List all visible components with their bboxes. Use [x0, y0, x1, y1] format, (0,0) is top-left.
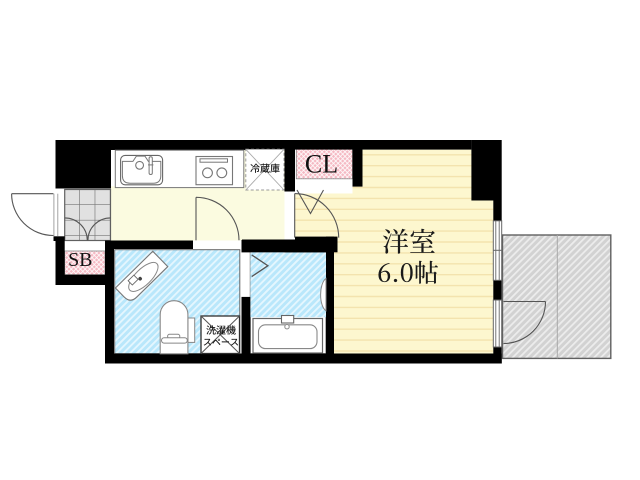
- svg-text:SB: SB: [68, 249, 92, 271]
- svg-text:CL: CL: [305, 150, 338, 179]
